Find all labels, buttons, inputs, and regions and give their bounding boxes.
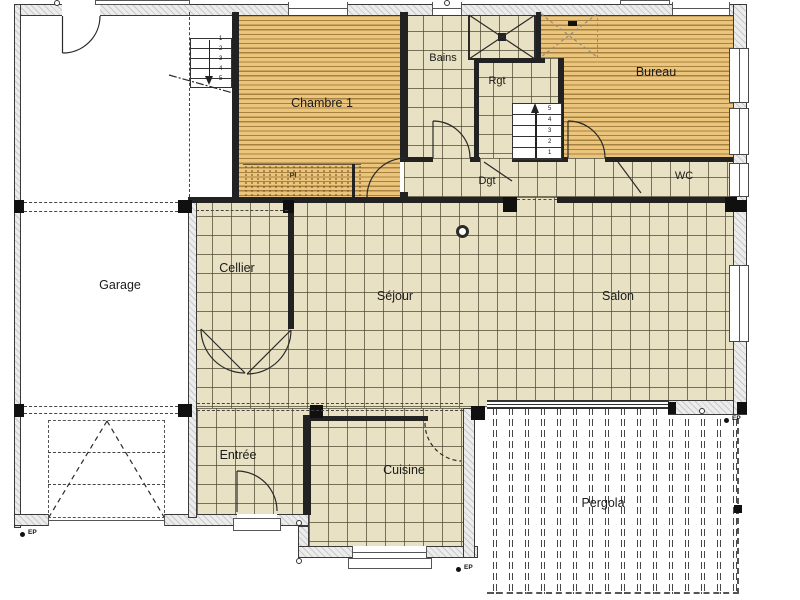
room-label-placard: Pl: [289, 171, 296, 180]
shower-cross-icon: [469, 15, 535, 59]
ep-dot-icon: [724, 418, 729, 423]
room-label-bureau: Bureau: [636, 65, 676, 79]
bains-door-swing: [433, 121, 470, 158]
room-label-dgt: Dgt: [478, 175, 495, 187]
room-label-sejour: Séjour: [377, 289, 413, 303]
ep-dot-icon: [20, 532, 25, 537]
garage-side-door-swing: [63, 16, 101, 53]
survey-marker-icon: [296, 520, 302, 526]
vent-marker-icon: [444, 0, 450, 6]
ep-label: EP: [732, 415, 741, 422]
room-label-bains: Bains: [429, 52, 457, 64]
vent-marker-icon: [54, 0, 60, 6]
survey-marker-icon: [296, 558, 302, 564]
stair-break-line: [169, 75, 233, 93]
room-label-cellier: Cellier: [219, 261, 254, 275]
ep-dot-icon: [456, 567, 461, 572]
room-label-salon: Salon: [602, 289, 634, 303]
room-label-wc: WC: [675, 170, 693, 182]
room-label-chambre1: Chambre 1: [291, 96, 353, 110]
survey-marker-icon: [699, 408, 705, 414]
cellier-door-left-swing: [201, 329, 245, 373]
wc-door-leaf: [618, 162, 641, 193]
structural-post-icon: [456, 225, 469, 238]
cellier-door-right-swing: [247, 330, 291, 374]
chambre1-door-swing: [367, 158, 406, 197]
garage-door-triangle: [49, 421, 164, 517]
cuisine-door-swing-dashed: [425, 423, 461, 461]
bureau-door-swing: [568, 121, 605, 158]
room-label-pergola: Pergola: [581, 496, 624, 510]
room-label-garage: Garage: [99, 278, 141, 292]
room-label-entree: Entrée: [220, 448, 257, 462]
tremie-cross-dashed: [541, 14, 597, 57]
entree-door-swing: [237, 471, 277, 512]
floor-plan: 1 2 3 4 5 5 4 3 2 1 EP: [0, 0, 800, 600]
ep-label: EP: [464, 564, 473, 571]
room-label-cuisine: Cuisine: [383, 463, 425, 477]
room-label-rgt: Rgt: [488, 75, 505, 87]
ep-label: EP: [28, 529, 37, 536]
